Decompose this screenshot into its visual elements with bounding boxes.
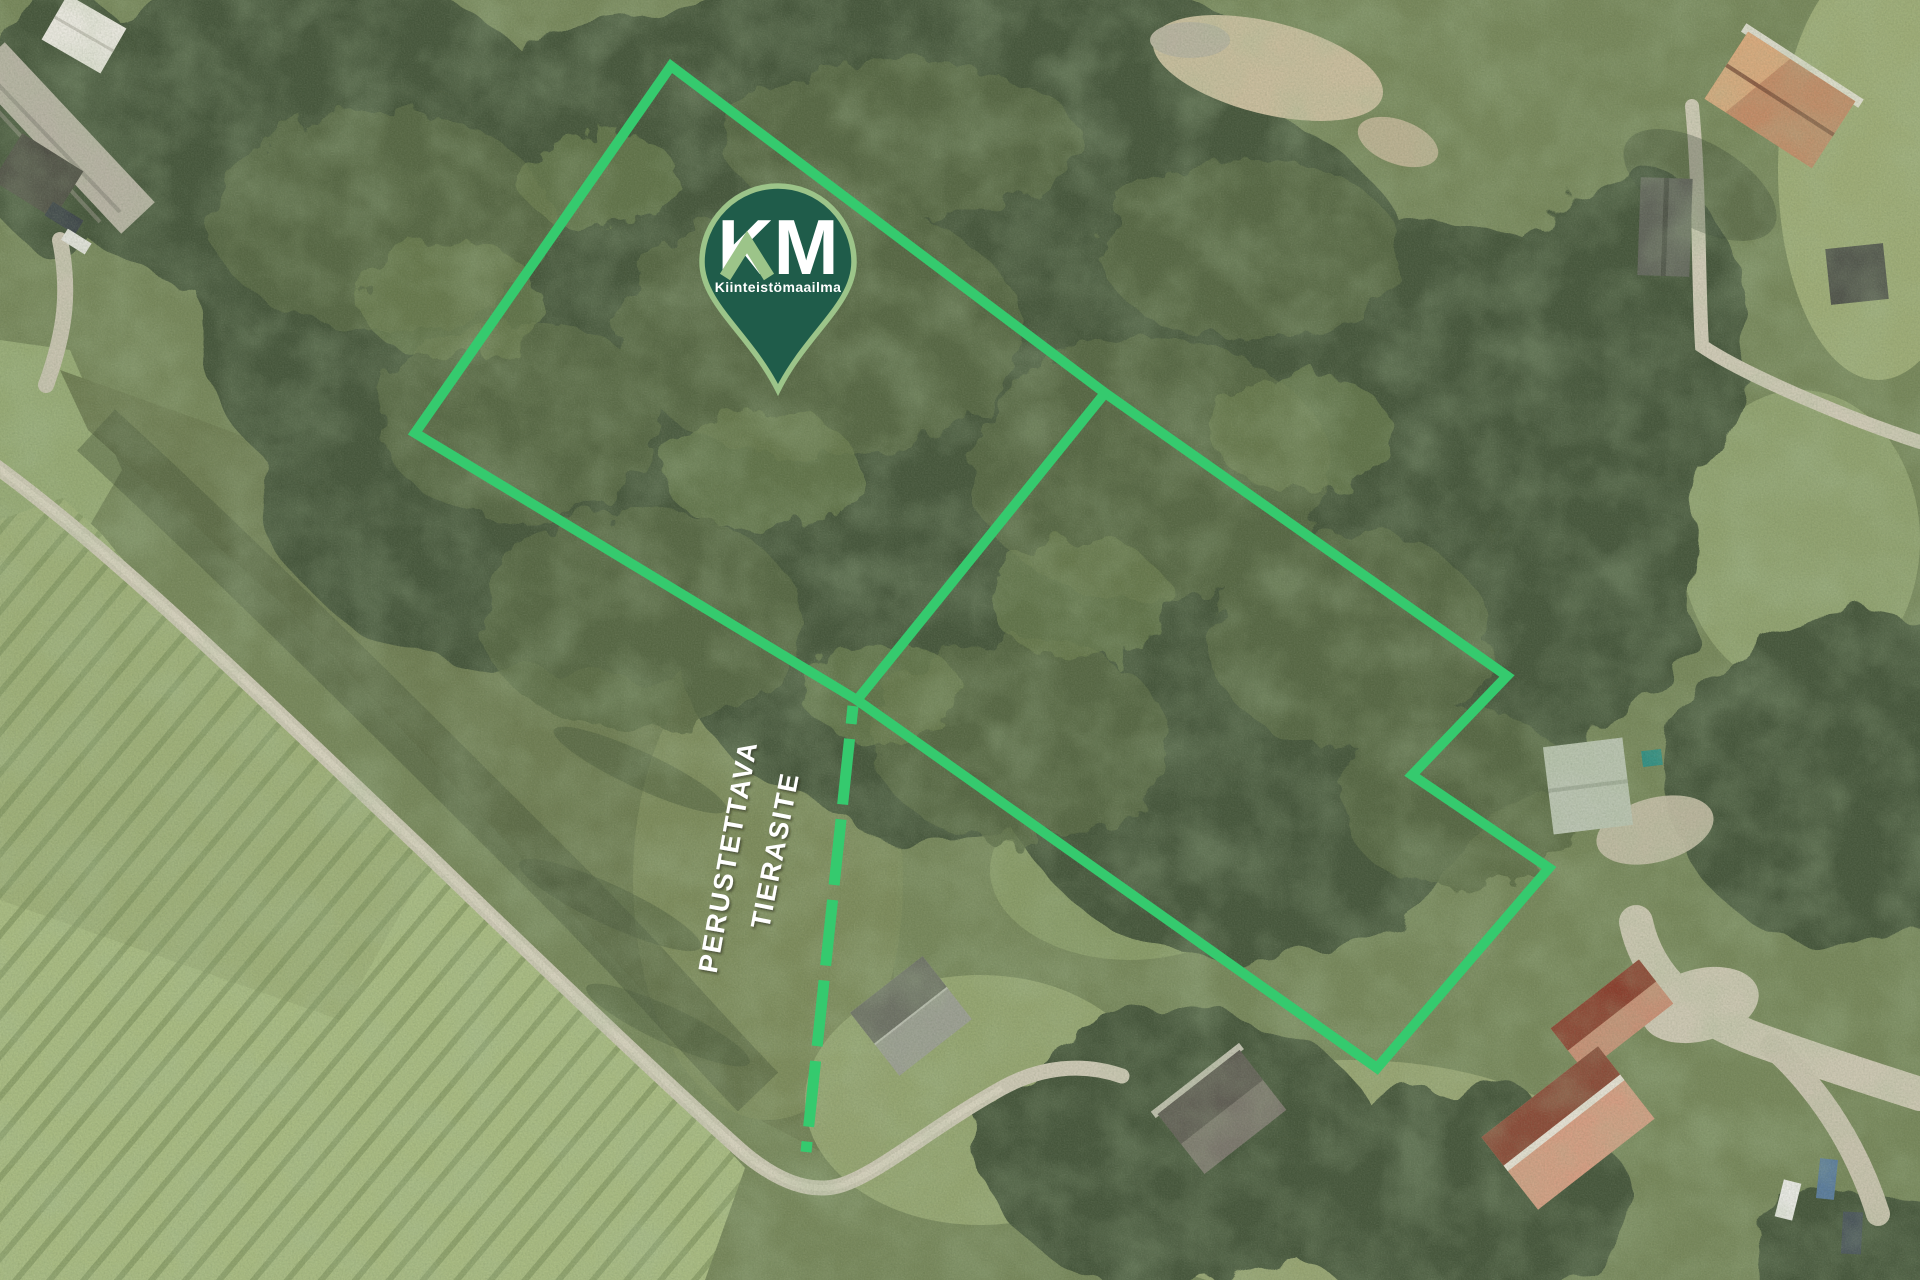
aerial-property-map: PERUSTETTAVA TIERASITE KM Kiinteistömaai… (0, 0, 1920, 1280)
aerial-photo (0, 0, 1920, 1280)
photo-grain-light (0, 0, 1920, 1280)
pin-logo-name: Kiinteistömaailma (715, 279, 842, 295)
pin-logo-initials: KM (717, 203, 838, 291)
